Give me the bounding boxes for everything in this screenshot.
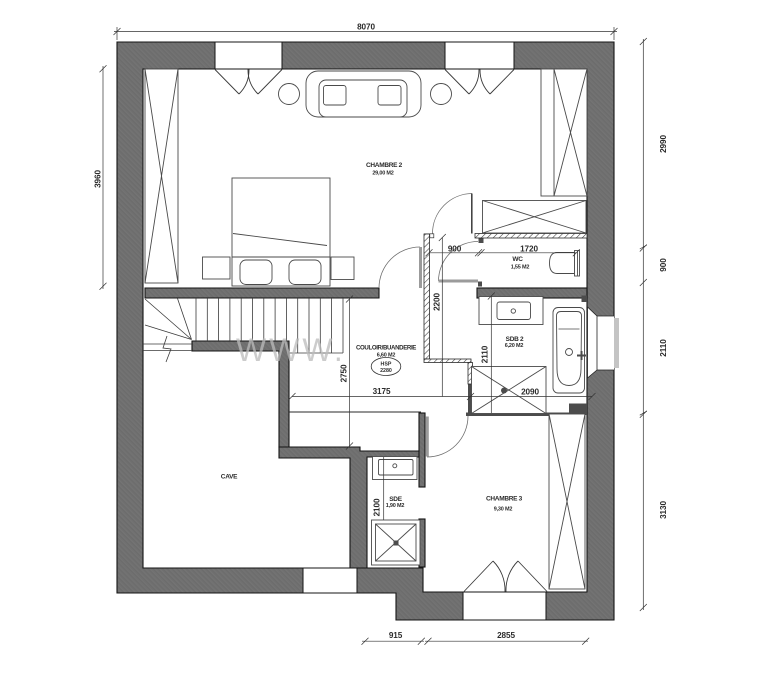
- svg-text:COULOIR/BUANDERIE: COULOIR/BUANDERIE: [356, 345, 416, 352]
- svg-text:HSP: HSP: [381, 362, 392, 368]
- svg-text:3960: 3960: [94, 170, 103, 188]
- svg-text:2100: 2100: [373, 498, 382, 516]
- svg-text:SDB 2: SDB 2: [506, 336, 524, 343]
- svg-text:3130: 3130: [659, 501, 668, 519]
- svg-text:900: 900: [659, 258, 668, 272]
- svg-text:2855: 2855: [497, 631, 515, 640]
- svg-text:CHAMBRE 3: CHAMBRE 3: [486, 496, 523, 503]
- svg-text:2200: 2200: [433, 293, 442, 311]
- svg-text:WWW.: WWW.: [236, 332, 346, 368]
- svg-text:3175: 3175: [373, 387, 391, 396]
- svg-text:9,30 M2: 9,30 M2: [494, 507, 513, 513]
- svg-text:2280: 2280: [380, 368, 392, 374]
- svg-text:CAVE: CAVE: [221, 474, 238, 481]
- svg-text:6,20 M2: 6,20 M2: [505, 343, 524, 349]
- svg-text:1,55 M2: 1,55 M2: [511, 265, 530, 271]
- svg-text:CHAMBRE 2: CHAMBRE 2: [366, 162, 403, 169]
- svg-text:915: 915: [389, 631, 403, 640]
- svg-text:2110: 2110: [481, 345, 490, 363]
- svg-text:900: 900: [448, 245, 462, 254]
- svg-text:1,90 M2: 1,90 M2: [386, 503, 405, 509]
- svg-text:29,00 M2: 29,00 M2: [372, 171, 393, 177]
- svg-text:2090: 2090: [521, 388, 539, 397]
- svg-text:2110: 2110: [659, 339, 668, 357]
- svg-text:2990: 2990: [659, 135, 668, 153]
- svg-text:WC: WC: [512, 256, 523, 263]
- svg-text:1720: 1720: [520, 245, 538, 254]
- svg-text:2750: 2750: [340, 364, 349, 382]
- svg-text:8070: 8070: [357, 23, 375, 32]
- svg-text:SDE: SDE: [389, 496, 402, 503]
